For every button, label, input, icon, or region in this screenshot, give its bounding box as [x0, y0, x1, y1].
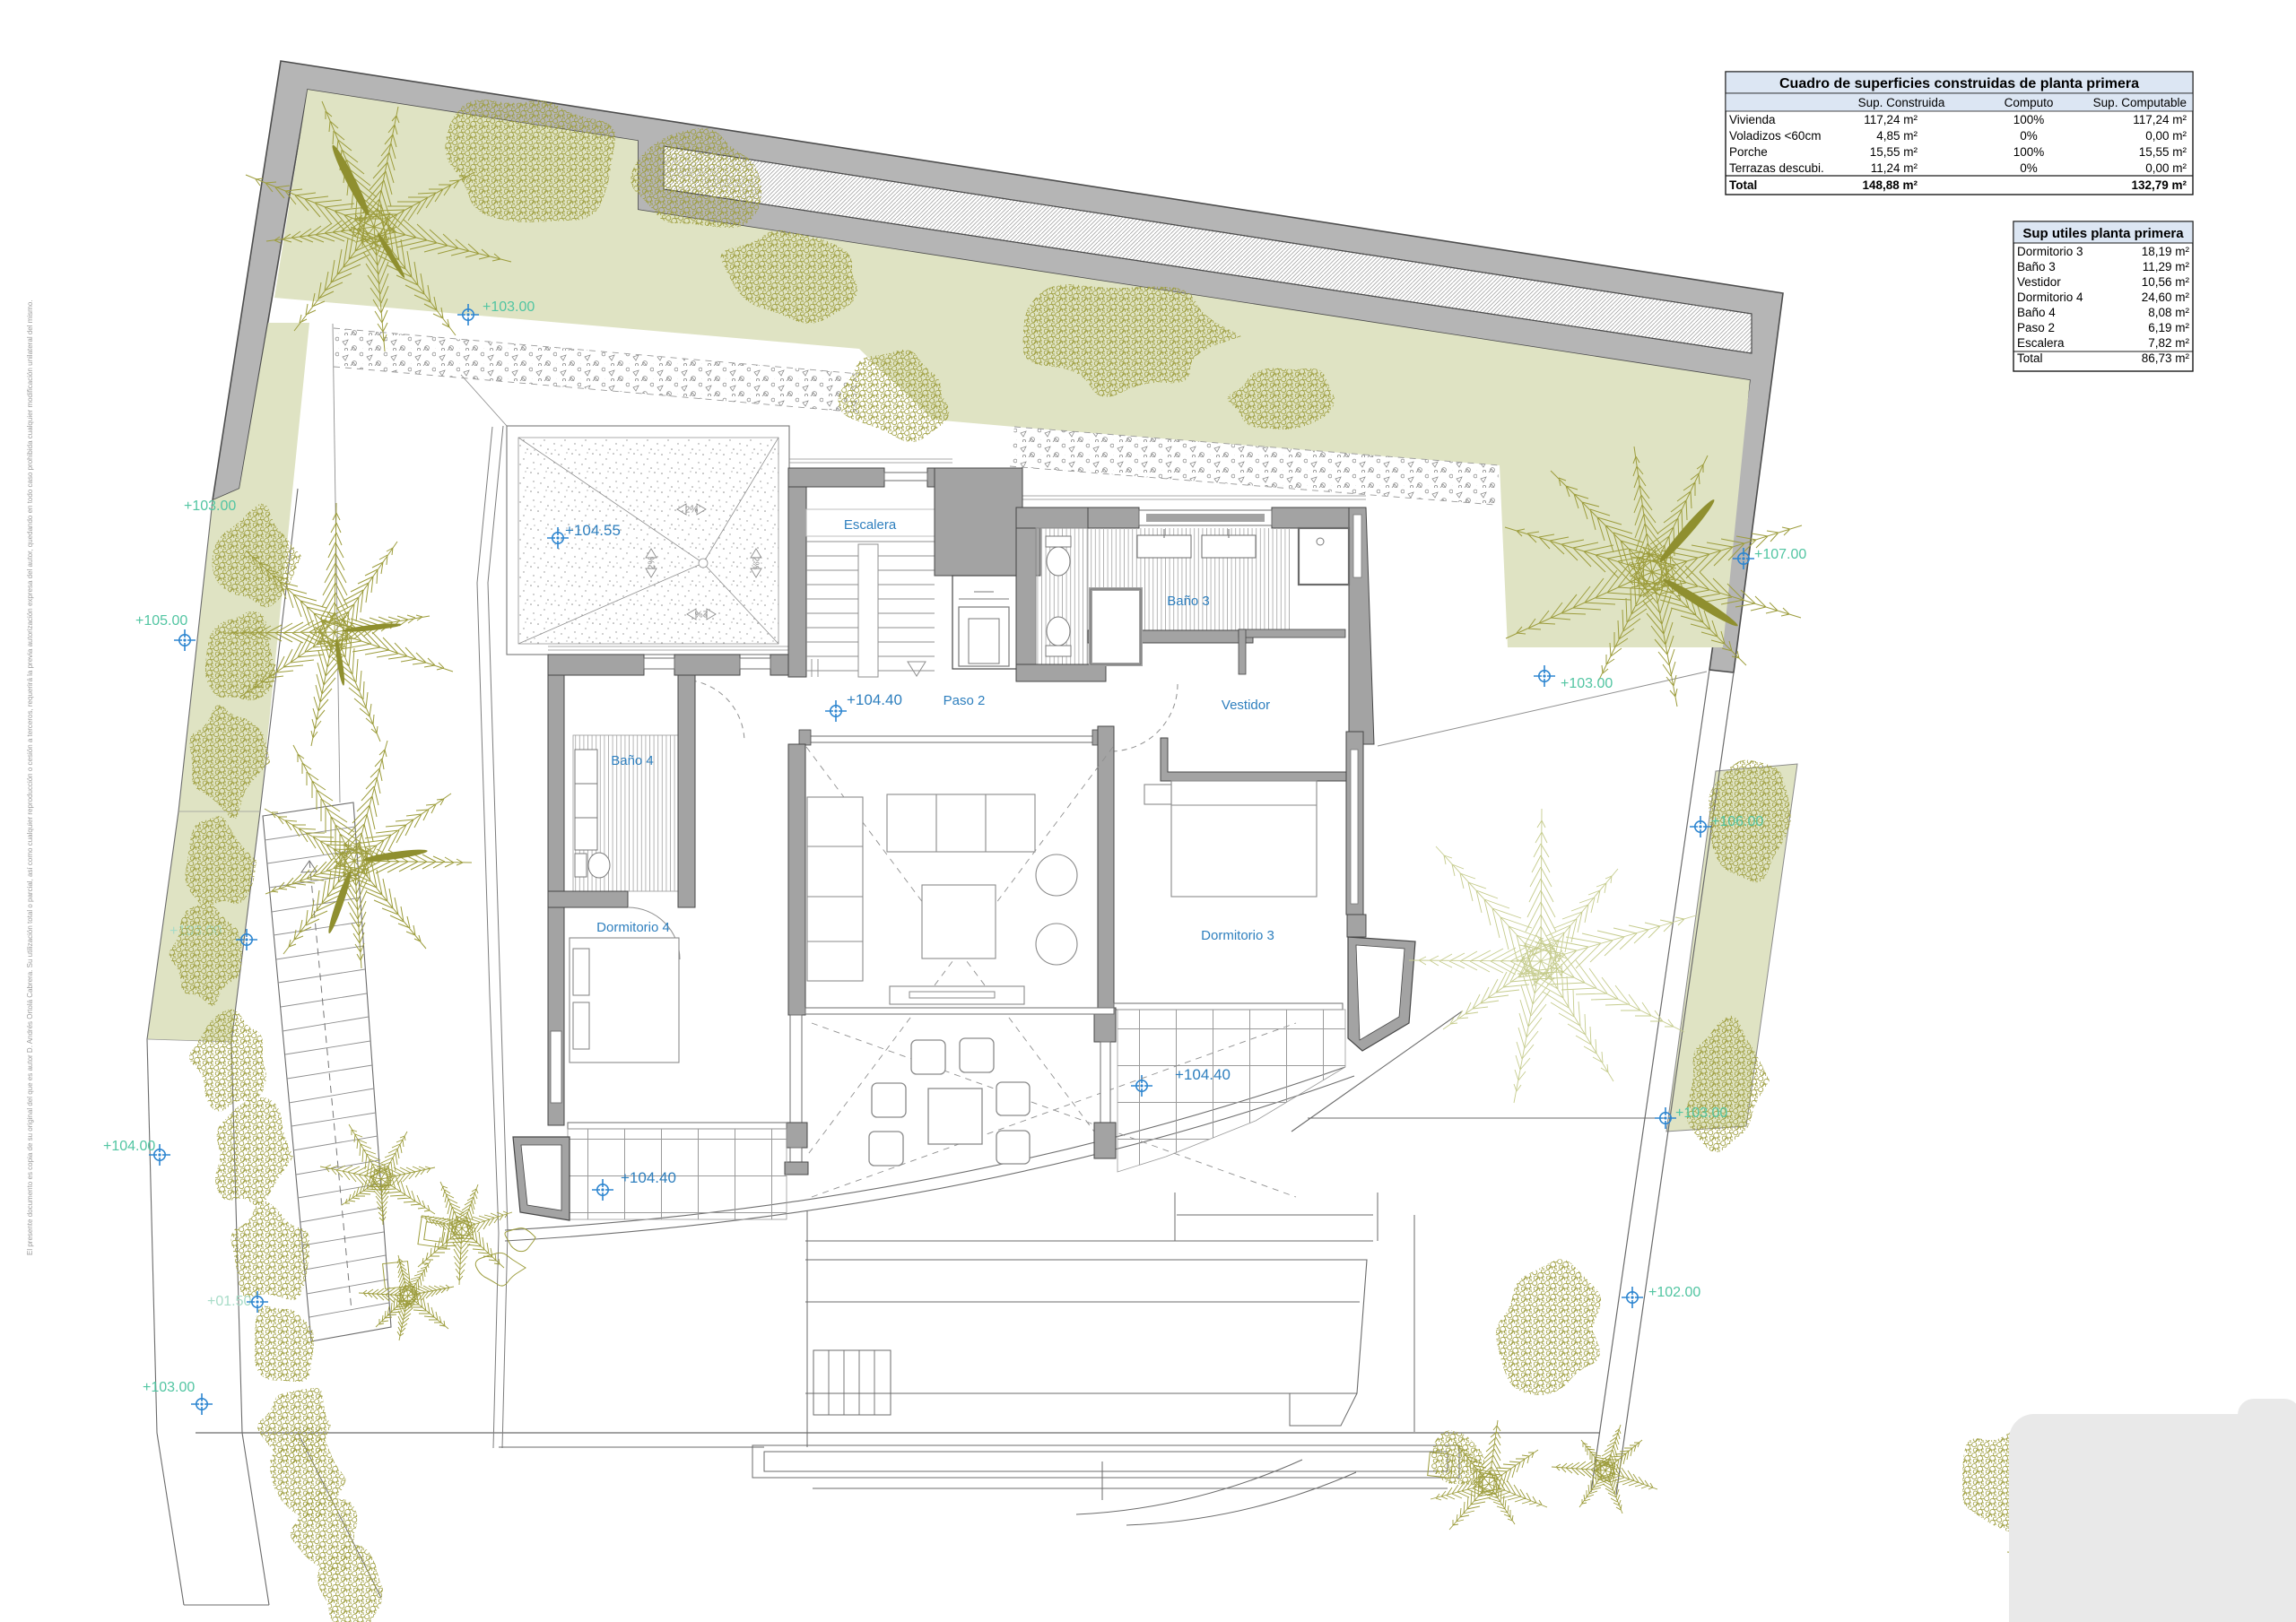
svg-text:15,55 m²: 15,55 m²	[2139, 145, 2187, 159]
svg-text:Baño 3: Baño 3	[2017, 260, 2056, 273]
svg-text:0%: 0%	[2020, 129, 2038, 143]
svg-text:18,19 m²: 18,19 m²	[2142, 245, 2190, 258]
svg-text:Vestidor: Vestidor	[1222, 698, 1270, 713]
svg-text:+102.00: +102.00	[1648, 1285, 1700, 1300]
svg-text:Dormitorio 3: Dormitorio 3	[1201, 928, 1274, 943]
svg-text:+103.00: +103.00	[143, 1380, 195, 1395]
svg-text:Baño 4: Baño 4	[611, 753, 654, 768]
svg-text:+103.00: +103.00	[1561, 676, 1613, 691]
svg-text:11,29 m²: 11,29 m²	[2143, 260, 2190, 273]
svg-text:0%: 0%	[2020, 161, 2038, 175]
svg-text:86,73 m²: 86,73 m²	[2142, 351, 2190, 365]
svg-text:0,00 m²: 0,00 m²	[2145, 161, 2187, 175]
svg-text:Escalera: Escalera	[844, 517, 897, 533]
svg-text:El presente documento es copia: El presente documento es copia de su ori…	[26, 300, 34, 1256]
svg-text:Porche: Porche	[1729, 145, 1768, 159]
svg-text:+105.00: +105.00	[135, 613, 187, 629]
svg-text:2%: 2%	[751, 557, 761, 570]
svg-text:15,55 m²: 15,55 m²	[1870, 145, 1918, 159]
svg-text:Voladizos <60cm: Voladizos <60cm	[1729, 129, 1821, 143]
svg-text:Escalera: Escalera	[2017, 336, 2065, 350]
svg-text:Paso 2: Paso 2	[2017, 321, 2055, 334]
svg-text:+107.00: +107.00	[1754, 547, 1806, 562]
svg-text:148,88 m²: 148,88 m²	[1862, 178, 1918, 192]
svg-text:+103.00: +103.00	[1675, 1106, 1727, 1121]
svg-text:Baño 4: Baño 4	[2017, 306, 2056, 319]
svg-text:+104.40: +104.40	[621, 1169, 676, 1186]
svg-text:10,56 m²: 10,56 m²	[2142, 275, 2190, 289]
svg-text:+104.00: +104.00	[103, 1139, 155, 1154]
svg-text:+104.55: +104.55	[565, 522, 621, 539]
svg-text:132,79 m²: 132,79 m²	[2131, 178, 2187, 192]
svg-text:Dormitorio 4: Dormitorio 4	[596, 920, 670, 935]
svg-text:0,00 m²: 0,00 m²	[2145, 129, 2187, 143]
svg-text:+104.40: +104.40	[847, 691, 902, 708]
svg-text:Dormitorio 4: Dormitorio 4	[2017, 291, 2083, 304]
svg-text:Baño 3: Baño 3	[1167, 594, 1210, 609]
svg-text:Vivienda: Vivienda	[1729, 113, 1776, 126]
svg-text:117,24 m²: 117,24 m²	[2133, 113, 2187, 126]
svg-text:Vestidor: Vestidor	[2017, 275, 2061, 289]
svg-text:Dormitorio 3: Dormitorio 3	[2017, 245, 2083, 258]
svg-text:117,24 m²: 117,24 m²	[1864, 113, 1918, 126]
svg-text:Cuadro de superficies construi: Cuadro de superficies construidas de pla…	[1779, 76, 2139, 91]
svg-text:Sup utiles planta primera: Sup utiles planta primera	[2022, 226, 2184, 241]
svg-text:+103.00: +103.00	[483, 299, 535, 315]
svg-text:2%: 2%	[648, 557, 657, 570]
svg-text:Paso 2: Paso 2	[944, 693, 986, 708]
svg-text:Sup. Computable: Sup. Computable	[2093, 96, 2187, 109]
svg-text:11,24 m²: 11,24 m²	[1871, 161, 1918, 175]
svg-text:Computo: Computo	[2005, 96, 2054, 109]
svg-text:+104.40: +104.40	[1175, 1066, 1231, 1083]
svg-text:100%: 100%	[2013, 145, 2045, 159]
svg-text:Terrazas descubi.: Terrazas descubi.	[1729, 161, 1824, 175]
svg-text:4,85 m²: 4,85 m²	[1876, 129, 1918, 143]
svg-text:8,08 m²: 8,08 m²	[2148, 306, 2189, 319]
svg-text:2%: 2%	[685, 506, 699, 516]
svg-text:Sup. Construida: Sup. Construida	[1858, 96, 1945, 109]
svg-text:7,82 m²: 7,82 m²	[2148, 336, 2189, 350]
svg-text:Total: Total	[2017, 351, 2043, 365]
svg-text:100%: 100%	[2013, 113, 2045, 126]
svg-text:Total: Total	[1729, 178, 1757, 192]
svg-text:2%: 2%	[695, 609, 709, 619]
svg-text:6,19 m²: 6,19 m²	[2148, 321, 2189, 334]
svg-text:+103.00: +103.00	[184, 499, 236, 514]
svg-text:24,60 m²: 24,60 m²	[2142, 291, 2190, 304]
svg-text:+106.00: +106.00	[1711, 814, 1763, 829]
